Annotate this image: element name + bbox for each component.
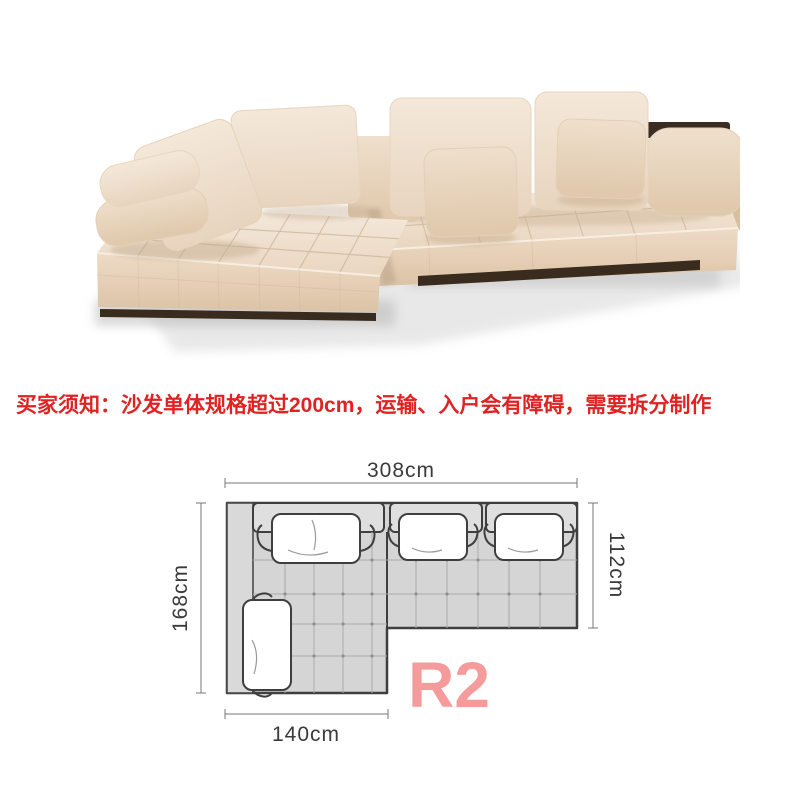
dim-label-depth-left: 168cm: [169, 564, 192, 632]
accent-pillow: [556, 118, 647, 199]
buyer-notice-text: 买家须知：沙发单体规格超过200cm，运输、入户会有障碍，需要拆分制作: [16, 394, 786, 418]
accent-pillow: [423, 146, 518, 237]
dimension-diagram: 308cm 168cm 112cm 140cm R2: [150, 440, 650, 760]
product-listing-image: 买家须知：沙发单体规格超过200cm，运输、入户会有障碍，需要拆分制作: [0, 0, 800, 800]
sofa-photo: [80, 60, 740, 360]
dim-label-depth-right: 112cm: [605, 532, 628, 598]
dim-label-width-bottom: 140cm: [272, 723, 340, 746]
bolster-cushion: [646, 128, 740, 216]
variant-label: R2: [408, 649, 490, 721]
sofa-plan: [227, 503, 577, 697]
dim-label-width-top: 308cm: [367, 459, 435, 482]
